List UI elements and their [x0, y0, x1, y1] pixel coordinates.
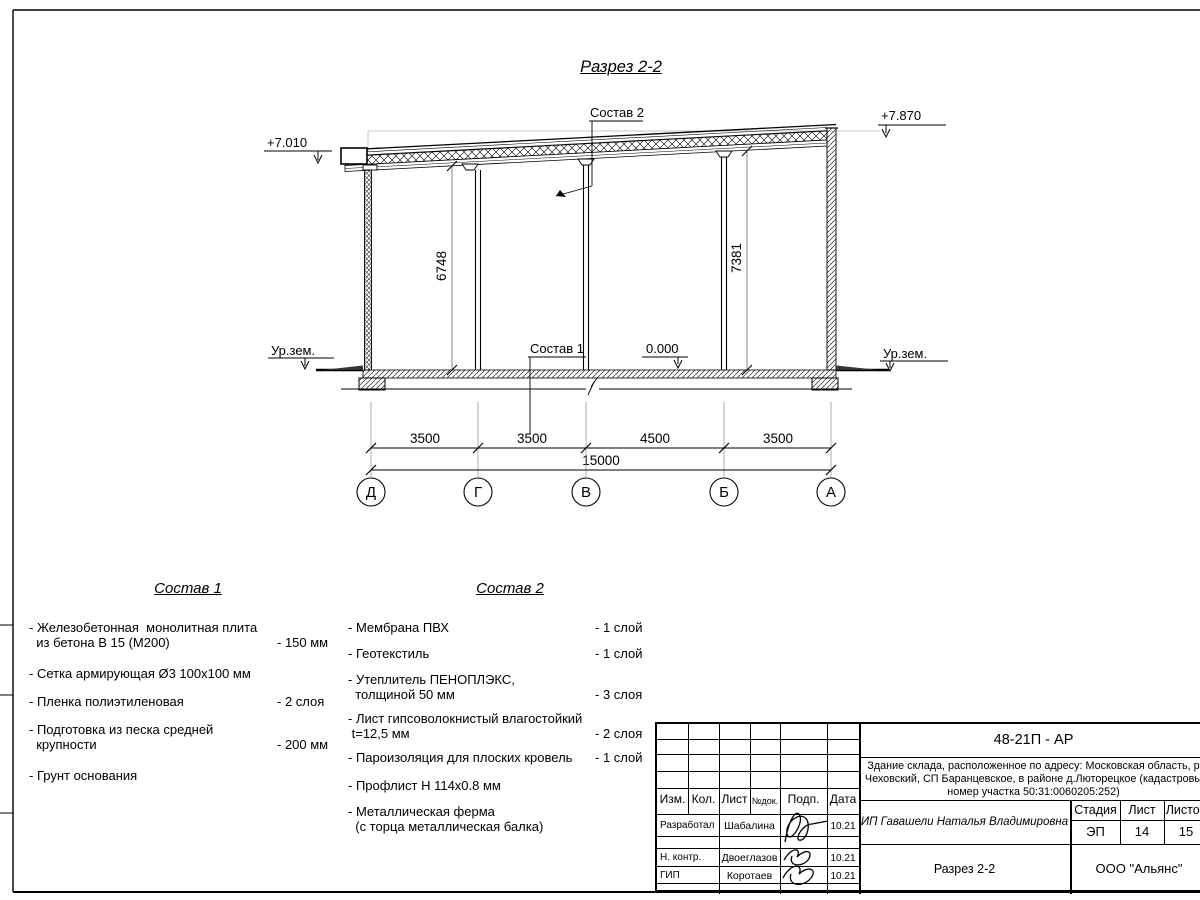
- left-wall: [363, 165, 377, 370]
- section-title: Разрез 2-2: [575, 58, 667, 77]
- list-item: - Утеплитель ПЕНОПЛЭКС, толщиной 50 мм: [348, 672, 593, 702]
- tb-date-developer: 10.21: [827, 821, 859, 832]
- tb-col-list: Лист: [719, 792, 750, 806]
- elevation-marks: [264, 125, 948, 371]
- list-item: - Сетка армирующая Ø3 100х100 мм: [29, 666, 289, 681]
- tb-company: ООО "Альянс": [1070, 844, 1200, 894]
- list-item-value: - 1 слой: [595, 750, 655, 765]
- list-item-value: - 2 слоя: [277, 694, 347, 709]
- reference-lines: [368, 131, 880, 151]
- drawing-sheet: { "sheet": { "title": "Разрез 2-2" }, "m…: [0, 0, 1200, 900]
- right-wall: [825, 128, 838, 370]
- list-item: - Металлическая ферма (с торца металличе…: [348, 804, 598, 834]
- height-dimension-lines: [447, 146, 752, 375]
- list-item-value: - 150 мм: [277, 635, 347, 650]
- tb-sheets-label: Листов: [1164, 803, 1200, 817]
- dim-total: 15000: [561, 453, 641, 468]
- roof-eave-end-cap: [341, 148, 367, 164]
- tb-role-gip: ГИП: [660, 870, 720, 881]
- tb-date-ncontrol: 10.21: [827, 853, 859, 864]
- tb-drawing-name: Разрез 2-2: [859, 844, 1070, 894]
- tb-sheet-label: Лист: [1120, 803, 1164, 817]
- break-symbol: [588, 378, 597, 395]
- dim-segment-2: 3500: [502, 431, 562, 446]
- dim-segment-3: 4500: [625, 431, 685, 446]
- list-item: - Грунт основания: [29, 768, 279, 783]
- ground-level-label-left: Ур.зем.: [271, 343, 315, 358]
- floor-composition-leader-label: Состав 1: [528, 341, 586, 356]
- foundation-block-left: [359, 378, 385, 390]
- list-item: - Подготовка из песка средней крупности: [29, 722, 279, 752]
- list-item-value: - 1 слой: [595, 646, 655, 661]
- tb-stage-label: Стадия: [1071, 803, 1120, 817]
- tb-col-ndok: №док.: [750, 796, 780, 806]
- list-item: - Профлист Н 114х0.8 мм: [348, 778, 593, 793]
- roof-assembly: [341, 125, 836, 172]
- title-block: Изм. Кол. Лист №док. Подп. Дата Разработ…: [655, 722, 1200, 892]
- tb-address-line-1: Здание склада, расположенное по адресу: …: [859, 760, 1200, 772]
- axis-label-b: Б: [708, 484, 740, 501]
- leader-lines: [528, 121, 643, 434]
- tb-address-line-3: номер участка 50:31:0060205:252): [859, 786, 1200, 798]
- dim-segment-4: 3500: [748, 431, 808, 446]
- tb-doc-code: 48-21П - АР: [859, 724, 1200, 757]
- axis-label-v: В: [570, 484, 602, 501]
- tb-col-podp: Подп.: [780, 792, 827, 806]
- tb-name-ncontrol: Двоеглазов: [719, 852, 780, 864]
- tb-client: ИП Гавашели Наталья Владимировна: [859, 800, 1070, 844]
- tb-date-gip: 10.21: [827, 871, 859, 882]
- tb-name-developer: Шабалина: [719, 820, 780, 832]
- tb-sheets-value: 15: [1164, 820, 1200, 844]
- list-item: - Геотекстиль: [348, 646, 593, 661]
- tb-sheet-value: 14: [1120, 820, 1164, 844]
- tb-col-kol: Кол.: [688, 792, 719, 806]
- list-item: - Железобетонная монолитная плита из бет…: [29, 620, 279, 650]
- list-item-value: - 2 слоя: [595, 726, 655, 741]
- composition-2-title: Состав 2: [450, 580, 570, 597]
- tb-stage-value: ЭП: [1071, 820, 1120, 844]
- axis-label-d: Д: [355, 484, 387, 501]
- foundation: [341, 378, 852, 395]
- tb-name-gip: Коротаев: [719, 870, 780, 882]
- tb-role-developer: Разработал: [660, 820, 720, 831]
- list-item: - Пароизоляция для плоских кровель: [348, 750, 593, 765]
- tb-col-izm: Изм.: [657, 792, 688, 806]
- tb-col-data: Дата: [827, 792, 859, 806]
- axis-label-g: Г: [462, 484, 494, 501]
- list-item-value: - 3 слоя: [595, 687, 655, 702]
- composition-1-title: Состав 1: [128, 580, 248, 597]
- ground-level-label-right: Ур.зем.: [883, 346, 927, 361]
- elevation-mark-left: +7.010: [267, 135, 307, 150]
- height-dimension-right: 7381: [729, 228, 745, 288]
- roof-composition-leader-label: Состав 2: [589, 105, 645, 120]
- height-dimension-left: 6748: [434, 236, 450, 296]
- columns: [462, 151, 732, 370]
- tb-address-line-2: Чеховский, СП Баранцевское, в районе д.Л…: [859, 773, 1200, 785]
- list-item: - Пленка полиэтиленовая: [29, 694, 279, 709]
- elevation-mark-right: +7.870: [881, 108, 921, 123]
- elevation-mark-zero: 0.000: [646, 341, 679, 356]
- floor-slab: [316, 366, 889, 379]
- list-item: - Лист гипсоволокнистый влагостойкий t=1…: [348, 711, 598, 741]
- tb-role-ncontrol: Н. контр.: [660, 852, 720, 863]
- list-item-value: - 200 мм: [277, 737, 347, 752]
- list-item: - Мембрана ПВХ: [348, 620, 593, 635]
- list-item-value: - 1 слой: [595, 620, 655, 635]
- foundation-block-right: [812, 378, 838, 390]
- dim-segment-1: 3500: [395, 431, 455, 446]
- axis-label-a: А: [815, 484, 847, 501]
